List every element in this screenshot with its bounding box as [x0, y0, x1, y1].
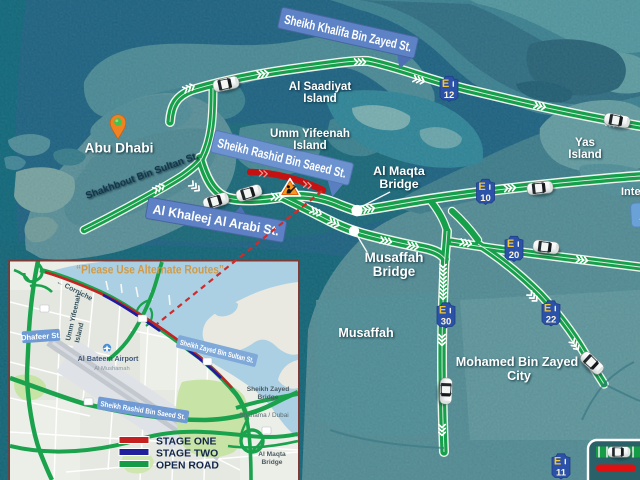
svg-text:“Please Use Alternate Routes”: “Please Use Alternate Routes”	[76, 263, 224, 277]
svg-text:Musaffah: Musaffah	[365, 250, 424, 265]
svg-text:Inter: Inter	[621, 186, 640, 198]
svg-text:Al Bateem Airport: Al Bateem Airport	[78, 354, 139, 363]
svg-text:Al Mushamah: Al Mushamah	[94, 366, 129, 372]
svg-text:Bridge: Bridge	[379, 177, 418, 191]
svg-text:Bridge: Bridge	[373, 264, 415, 279]
svg-text:E: E	[554, 456, 561, 468]
svg-text:Island: Island	[293, 139, 327, 152]
svg-text:Island: Island	[303, 92, 337, 105]
svg-text:Al Maqta: Al Maqta	[258, 451, 286, 458]
svg-text:Island: Island	[568, 148, 602, 161]
svg-text:OPEN ROAD: OPEN ROAD	[156, 461, 219, 472]
svg-text:STAGE ONE: STAGE ONE	[156, 437, 216, 448]
svg-text:STAGE TWO: STAGE TWO	[156, 449, 218, 460]
svg-text:E: E	[442, 78, 449, 90]
svg-text:Bridge: Bridge	[258, 394, 279, 401]
svg-text:30: 30	[441, 317, 452, 328]
svg-text:Al Maqta: Al Maqta	[373, 164, 425, 178]
svg-text:Shahama / Dubai: Shahama / Dubai	[239, 412, 288, 419]
svg-text:22: 22	[546, 315, 557, 326]
svg-text:E: E	[478, 181, 485, 193]
svg-text:E: E	[544, 303, 551, 315]
svg-text:Sheikh Zayed: Sheikh Zayed	[247, 386, 290, 393]
svg-text:11: 11	[556, 468, 567, 479]
svg-text:Mohamed Bin Zayed: Mohamed Bin Zayed	[456, 355, 578, 369]
svg-text:E: E	[439, 305, 446, 317]
svg-text:Abu Dhabi: Abu Dhabi	[85, 141, 154, 156]
svg-text:20: 20	[509, 250, 520, 261]
svg-text:12: 12	[444, 90, 455, 101]
svg-text:Bridge: Bridge	[262, 459, 283, 466]
svg-text:E: E	[507, 238, 514, 250]
svg-text:10: 10	[480, 193, 491, 204]
svg-text:City: City	[507, 369, 531, 383]
svg-text:Musaffah: Musaffah	[338, 326, 393, 340]
